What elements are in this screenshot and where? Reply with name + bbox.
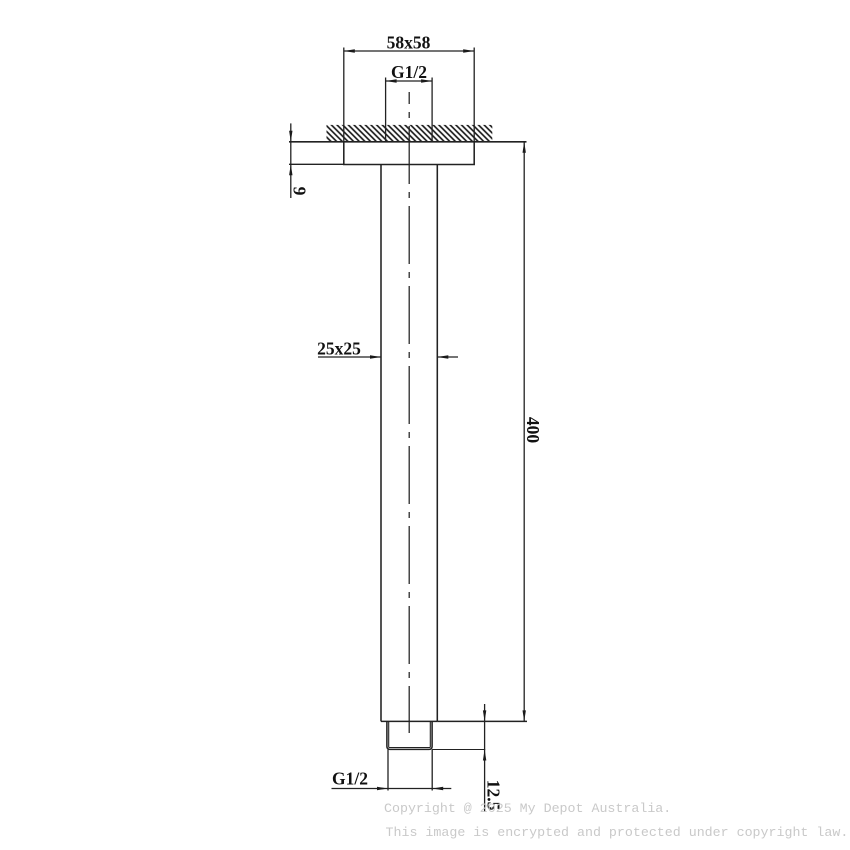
svg-text:25x25: 25x25: [317, 339, 361, 359]
svg-text:9: 9: [290, 187, 310, 196]
svg-text:400: 400: [523, 417, 543, 444]
svg-text:This image is encrypted and pr: This image is encrypted and protected un…: [386, 825, 849, 840]
svg-text:G1/2: G1/2: [332, 769, 368, 789]
svg-text:G1/2: G1/2: [391, 62, 427, 82]
svg-text:Copyright @ 2025 My Depot Aust: Copyright @ 2025 My Depot Australia.: [384, 801, 671, 816]
svg-text:58x58: 58x58: [387, 33, 431, 53]
